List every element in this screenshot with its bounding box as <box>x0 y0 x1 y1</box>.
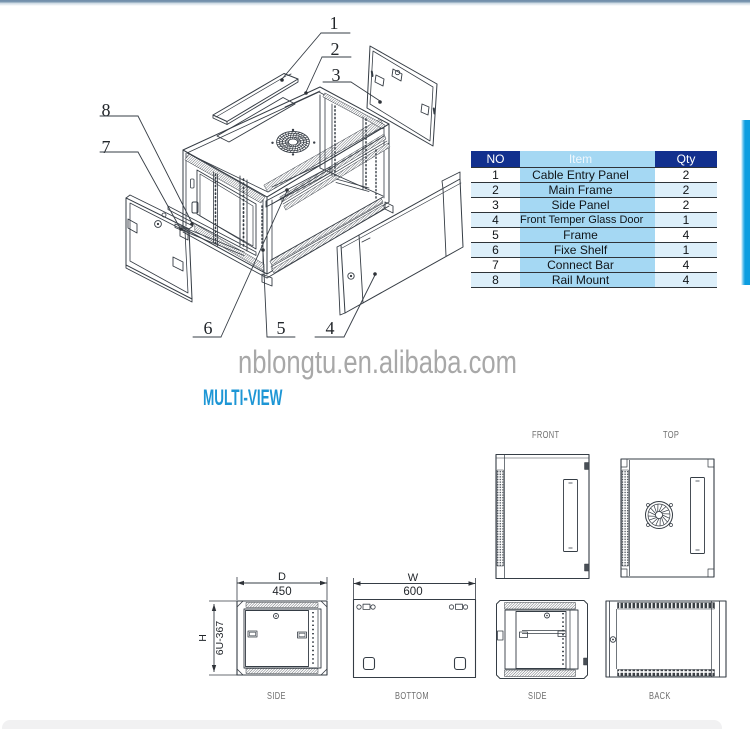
svg-text:7: 7 <box>102 137 111 157</box>
svg-text:2: 2 <box>331 39 340 59</box>
svg-text:W: W <box>408 572 419 584</box>
svg-text:4: 4 <box>326 318 335 338</box>
svg-text:1: 1 <box>330 13 339 33</box>
svg-text:600: 600 <box>403 586 422 598</box>
svg-text:8: 8 <box>102 100 111 120</box>
svg-text:D: D <box>278 571 286 583</box>
svg-text:6: 6 <box>204 318 213 338</box>
svg-text:H: H <box>197 634 209 642</box>
svg-text:6U-367: 6U-367 <box>214 621 226 656</box>
svg-text:450: 450 <box>272 586 291 598</box>
svg-text:5: 5 <box>277 318 286 338</box>
